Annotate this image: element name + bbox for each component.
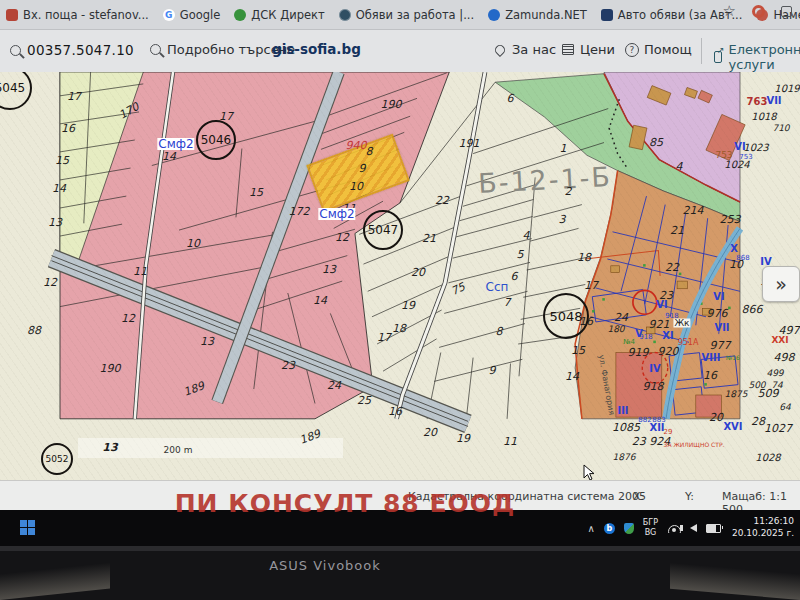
map-label: Смф2 bbox=[157, 138, 194, 150]
language-indicator[interactable]: БГР BG bbox=[643, 518, 658, 538]
nav-label: Електронни услуги bbox=[728, 42, 800, 72]
star-icon[interactable]: ☆ bbox=[723, 4, 736, 19]
parcel-number-circle: 5047 bbox=[363, 210, 403, 250]
speaker-icon[interactable] bbox=[690, 524, 697, 532]
map-label: 23 bbox=[280, 360, 296, 371]
map-label: 1028 bbox=[754, 453, 781, 463]
watermark: ПИ КОНСУЛТ 88 ЕООД bbox=[175, 489, 516, 518]
map-label: 200 m bbox=[163, 446, 194, 455]
site-logo[interactable]: gis-sofia.bg bbox=[272, 41, 361, 57]
map-label: 74 bbox=[770, 381, 783, 390]
nav-label: Цени bbox=[580, 42, 615, 57]
mail-icon bbox=[6, 9, 18, 21]
map-label: 14 bbox=[312, 295, 328, 306]
search-icon bbox=[10, 45, 21, 56]
map-label: 13 bbox=[47, 217, 63, 228]
globe-icon bbox=[339, 9, 351, 21]
bookmark-item[interactable]: Авто обяви (за Авт... bbox=[601, 8, 743, 22]
map-label: 180 bbox=[606, 325, 625, 334]
map-label: 190 bbox=[99, 363, 122, 374]
map-label: 18 bbox=[576, 252, 592, 263]
map-label: 1023 bbox=[742, 143, 769, 153]
date-text: 20.10.2025 г. bbox=[732, 528, 794, 540]
parcel-number-circle: 5052 bbox=[41, 443, 73, 475]
map-label: 9 bbox=[358, 163, 367, 174]
map-label: ул. Фанагория bbox=[597, 353, 616, 416]
map-label: 3 bbox=[558, 214, 567, 225]
map-label: XXI bbox=[770, 336, 789, 345]
windows-start-button[interactable] bbox=[20, 520, 35, 535]
map-label: 25 bbox=[356, 395, 372, 406]
google-icon: G bbox=[163, 9, 175, 21]
x-coordinate-label: X: bbox=[633, 490, 644, 503]
bookmarks-bar: Вх. поща - stefanov...GGoogleДСК ДиректО… bbox=[0, 0, 800, 30]
map-label: 12 bbox=[334, 232, 350, 243]
map-label: 10 bbox=[185, 238, 201, 249]
map-label: 6 bbox=[510, 271, 519, 282]
map-label: 1024 bbox=[723, 160, 750, 170]
time-text: 11:26:10 bbox=[754, 516, 794, 528]
map-label: №16 bbox=[725, 355, 741, 361]
bookmark-item[interactable]: GGoogle bbox=[163, 8, 221, 22]
laptop-hinge bbox=[0, 546, 800, 551]
map-label: 14 bbox=[161, 151, 177, 162]
map-label: 189 bbox=[181, 380, 206, 398]
parcel-id-text[interactable]: 00357.5047.10 bbox=[27, 42, 134, 58]
bookmark-label: Вх. поща - stefanov... bbox=[23, 8, 149, 22]
map-label: 85 bbox=[648, 137, 664, 148]
map-label: 1019 bbox=[773, 84, 800, 94]
map-label: 214 bbox=[682, 205, 705, 216]
y-coordinate-label: Y: bbox=[685, 490, 694, 503]
browser-toolbar: ☆ bbox=[723, 4, 792, 19]
clock[interactable]: 11:26:10 20.10.2025 г. bbox=[732, 516, 794, 539]
map-label: 11 bbox=[132, 266, 148, 277]
header-divider bbox=[701, 38, 702, 64]
map-label: Жк bbox=[673, 319, 690, 328]
map-label: 190 bbox=[380, 99, 403, 110]
map-label: 12 bbox=[120, 313, 136, 324]
map-label: 189 bbox=[297, 428, 322, 446]
map-label: 868 bbox=[735, 255, 750, 262]
bookmark-item[interactable]: Вх. поща - stefanov... bbox=[6, 8, 149, 22]
opera-icon[interactable] bbox=[752, 5, 765, 18]
map-label: 918 bbox=[638, 334, 653, 341]
map-label: XVI bbox=[722, 422, 743, 432]
bookmark-label: Zamunda.NET bbox=[505, 8, 587, 22]
map-label: 24 bbox=[613, 312, 629, 323]
map-label: 976 bbox=[706, 308, 729, 319]
map-label: 2 bbox=[564, 186, 573, 197]
map-label: 4 bbox=[675, 161, 684, 172]
bookmark-label: ДСК Директ bbox=[251, 8, 324, 22]
nav-about[interactable]: За нас bbox=[495, 42, 556, 57]
map-label: 498 bbox=[773, 352, 796, 363]
map-label: 5 bbox=[516, 249, 525, 260]
map-label: 951А bbox=[677, 339, 700, 347]
security-shield-icon[interactable] bbox=[624, 523, 634, 534]
map-label: 75 bbox=[448, 281, 467, 298]
wifi-icon[interactable] bbox=[667, 524, 681, 533]
auto-icon bbox=[601, 9, 613, 21]
bluetooth-icon[interactable]: b bbox=[604, 523, 615, 534]
map-label: 12 bbox=[42, 277, 58, 288]
site-header: 00357.5047.10 Подробно търсене gis-sofia… bbox=[0, 30, 800, 73]
map-label: 191 bbox=[458, 138, 481, 149]
map-label: 500 bbox=[747, 381, 766, 390]
doc-icon bbox=[562, 44, 574, 55]
bookmark-item[interactable]: Zamunda.NET bbox=[488, 8, 587, 22]
tray-chevron-icon[interactable]: ∧ bbox=[587, 523, 594, 534]
map-label: Ссп bbox=[485, 281, 510, 293]
map-label: 10 bbox=[348, 181, 364, 192]
site-name-text: gis-sofia.bg bbox=[272, 41, 361, 57]
language-line1: БГР bbox=[643, 518, 658, 528]
laptop-screen: Вх. поща - stefanov...GGoogleДСК ДиректО… bbox=[0, 0, 800, 600]
map-label: 64 bbox=[778, 403, 791, 412]
map-label: 8 bbox=[495, 326, 504, 337]
map-label: 20 bbox=[422, 427, 438, 438]
map-label: 14 bbox=[51, 183, 67, 194]
map-label: 24 bbox=[326, 380, 342, 391]
laptop-bezel: ASUS Vivobook bbox=[0, 546, 800, 600]
parcel-number-circle: 5048 bbox=[543, 293, 589, 339]
cadastral-map[interactable]: 17161514131288170Смф21417151019094089101… bbox=[0, 72, 800, 480]
map-label: Б-12-1-Б bbox=[476, 163, 613, 197]
map-label: 11 bbox=[502, 436, 518, 447]
map-label: №4 bbox=[622, 339, 636, 346]
map-label: XI bbox=[661, 331, 674, 341]
map-label: VII bbox=[713, 323, 730, 333]
map-label: 15 bbox=[248, 187, 264, 198]
language-line2: BG bbox=[645, 528, 657, 538]
bookmark-item[interactable]: Обяви за работа |... bbox=[339, 8, 475, 22]
map-label: VI bbox=[655, 300, 668, 310]
map-label: 18 bbox=[391, 323, 407, 334]
map-label: 921 bbox=[648, 319, 671, 330]
nav-label: Помощ bbox=[644, 42, 692, 57]
map-label: III bbox=[616, 406, 629, 416]
map-label: 21 bbox=[669, 225, 685, 236]
map-label: 919 bbox=[627, 347, 650, 358]
map-label: 4 bbox=[522, 230, 531, 241]
ext-link-icon bbox=[714, 51, 722, 63]
map-label: 13 bbox=[199, 336, 215, 347]
map-label: 253 bbox=[719, 214, 742, 225]
map-label: X bbox=[729, 244, 739, 254]
map-label: 918 bbox=[642, 381, 665, 392]
map-label: 20 bbox=[708, 412, 724, 423]
zoom-search-icon bbox=[150, 44, 161, 55]
bookmark-item[interactable]: ДСК Директ bbox=[234, 8, 324, 22]
map-label: 16 bbox=[702, 370, 718, 381]
map-label: 1027 bbox=[763, 423, 793, 434]
parcel-number-circle: 5045 bbox=[0, 72, 32, 110]
nav-help[interactable]: ?Помощ bbox=[625, 42, 692, 57]
extensions-icon[interactable] bbox=[781, 6, 792, 17]
map-label: 22 bbox=[664, 262, 680, 273]
map-label: 20 bbox=[410, 267, 426, 278]
map-label: 6 bbox=[506, 93, 515, 104]
map-label: 7 bbox=[503, 297, 512, 308]
map-label: 14 bbox=[564, 371, 580, 382]
map-label: 499 bbox=[765, 369, 784, 378]
map-label: Смф2 bbox=[318, 208, 355, 220]
map-label: VI bbox=[712, 292, 725, 302]
map-label: 88 bbox=[26, 325, 42, 336]
map-label: 13 bbox=[321, 264, 337, 275]
dsk-icon bbox=[234, 9, 246, 21]
map-labels: 17161514131288170Смф21417151019094089101… bbox=[0, 72, 800, 480]
map-label: 866 bbox=[741, 304, 764, 315]
map-label: 977 bbox=[709, 340, 732, 351]
map-label: IV bbox=[648, 364, 661, 374]
map-label: 13 bbox=[101, 442, 118, 453]
help-icon: ? bbox=[625, 43, 639, 57]
zamunda-icon bbox=[488, 9, 500, 21]
map-label: 17 bbox=[376, 332, 392, 343]
map-label: 15 bbox=[570, 345, 586, 356]
map-label: 1876 bbox=[612, 453, 637, 462]
map-label: 21 bbox=[421, 233, 437, 244]
map-label: ЗА ЖИЛИЩНО СТР. bbox=[663, 442, 726, 448]
map-label: 9 bbox=[488, 365, 497, 376]
map-label: 172 bbox=[288, 206, 311, 217]
map-label: 16 bbox=[60, 123, 76, 134]
map-label: 170 bbox=[116, 100, 141, 121]
map-label: 17 bbox=[66, 91, 82, 102]
bookmark-label: Обяви за работа |... bbox=[356, 8, 475, 22]
map-label: 920 bbox=[657, 346, 680, 357]
map-label: 19 bbox=[400, 300, 416, 311]
map-label: 19 bbox=[455, 433, 471, 444]
map-label: 1018 bbox=[750, 112, 777, 122]
panel-expand-button[interactable]: » bbox=[762, 266, 800, 302]
map-label: 16 bbox=[387, 406, 403, 417]
desk-surface bbox=[670, 563, 800, 600]
pin-icon bbox=[493, 42, 507, 56]
map-label: 1875 bbox=[724, 390, 749, 399]
nav-label: За нас bbox=[512, 42, 556, 57]
parcel-number-circle: 5046 bbox=[196, 120, 236, 160]
map-label: 8 bbox=[365, 146, 374, 157]
map-label: VII bbox=[765, 96, 782, 106]
battery-icon[interactable] bbox=[706, 524, 721, 533]
map-label: 710 bbox=[771, 124, 790, 133]
nav-eservices[interactable]: Електронни услуги bbox=[714, 42, 800, 72]
nav-prices[interactable]: Цени bbox=[562, 42, 615, 57]
map-label: VIII bbox=[701, 353, 722, 363]
map-label: 29 bbox=[663, 429, 674, 436]
map-label: 22 bbox=[434, 195, 450, 206]
map-label: 1 bbox=[559, 143, 568, 154]
bookmark-label: Google bbox=[180, 8, 221, 22]
desk-surface bbox=[0, 562, 110, 600]
laptop-brand: ASUS Vivobook bbox=[269, 558, 381, 573]
mouse-cursor bbox=[583, 464, 597, 480]
map-label: 15 bbox=[54, 155, 70, 166]
system-tray: ∧ b БГР BG 11:26:10 20.10.2025 г. bbox=[587, 510, 794, 546]
parcel-search-value[interactable]: 00357.5047.10 bbox=[10, 42, 134, 58]
map-label: 17 bbox=[583, 280, 599, 291]
